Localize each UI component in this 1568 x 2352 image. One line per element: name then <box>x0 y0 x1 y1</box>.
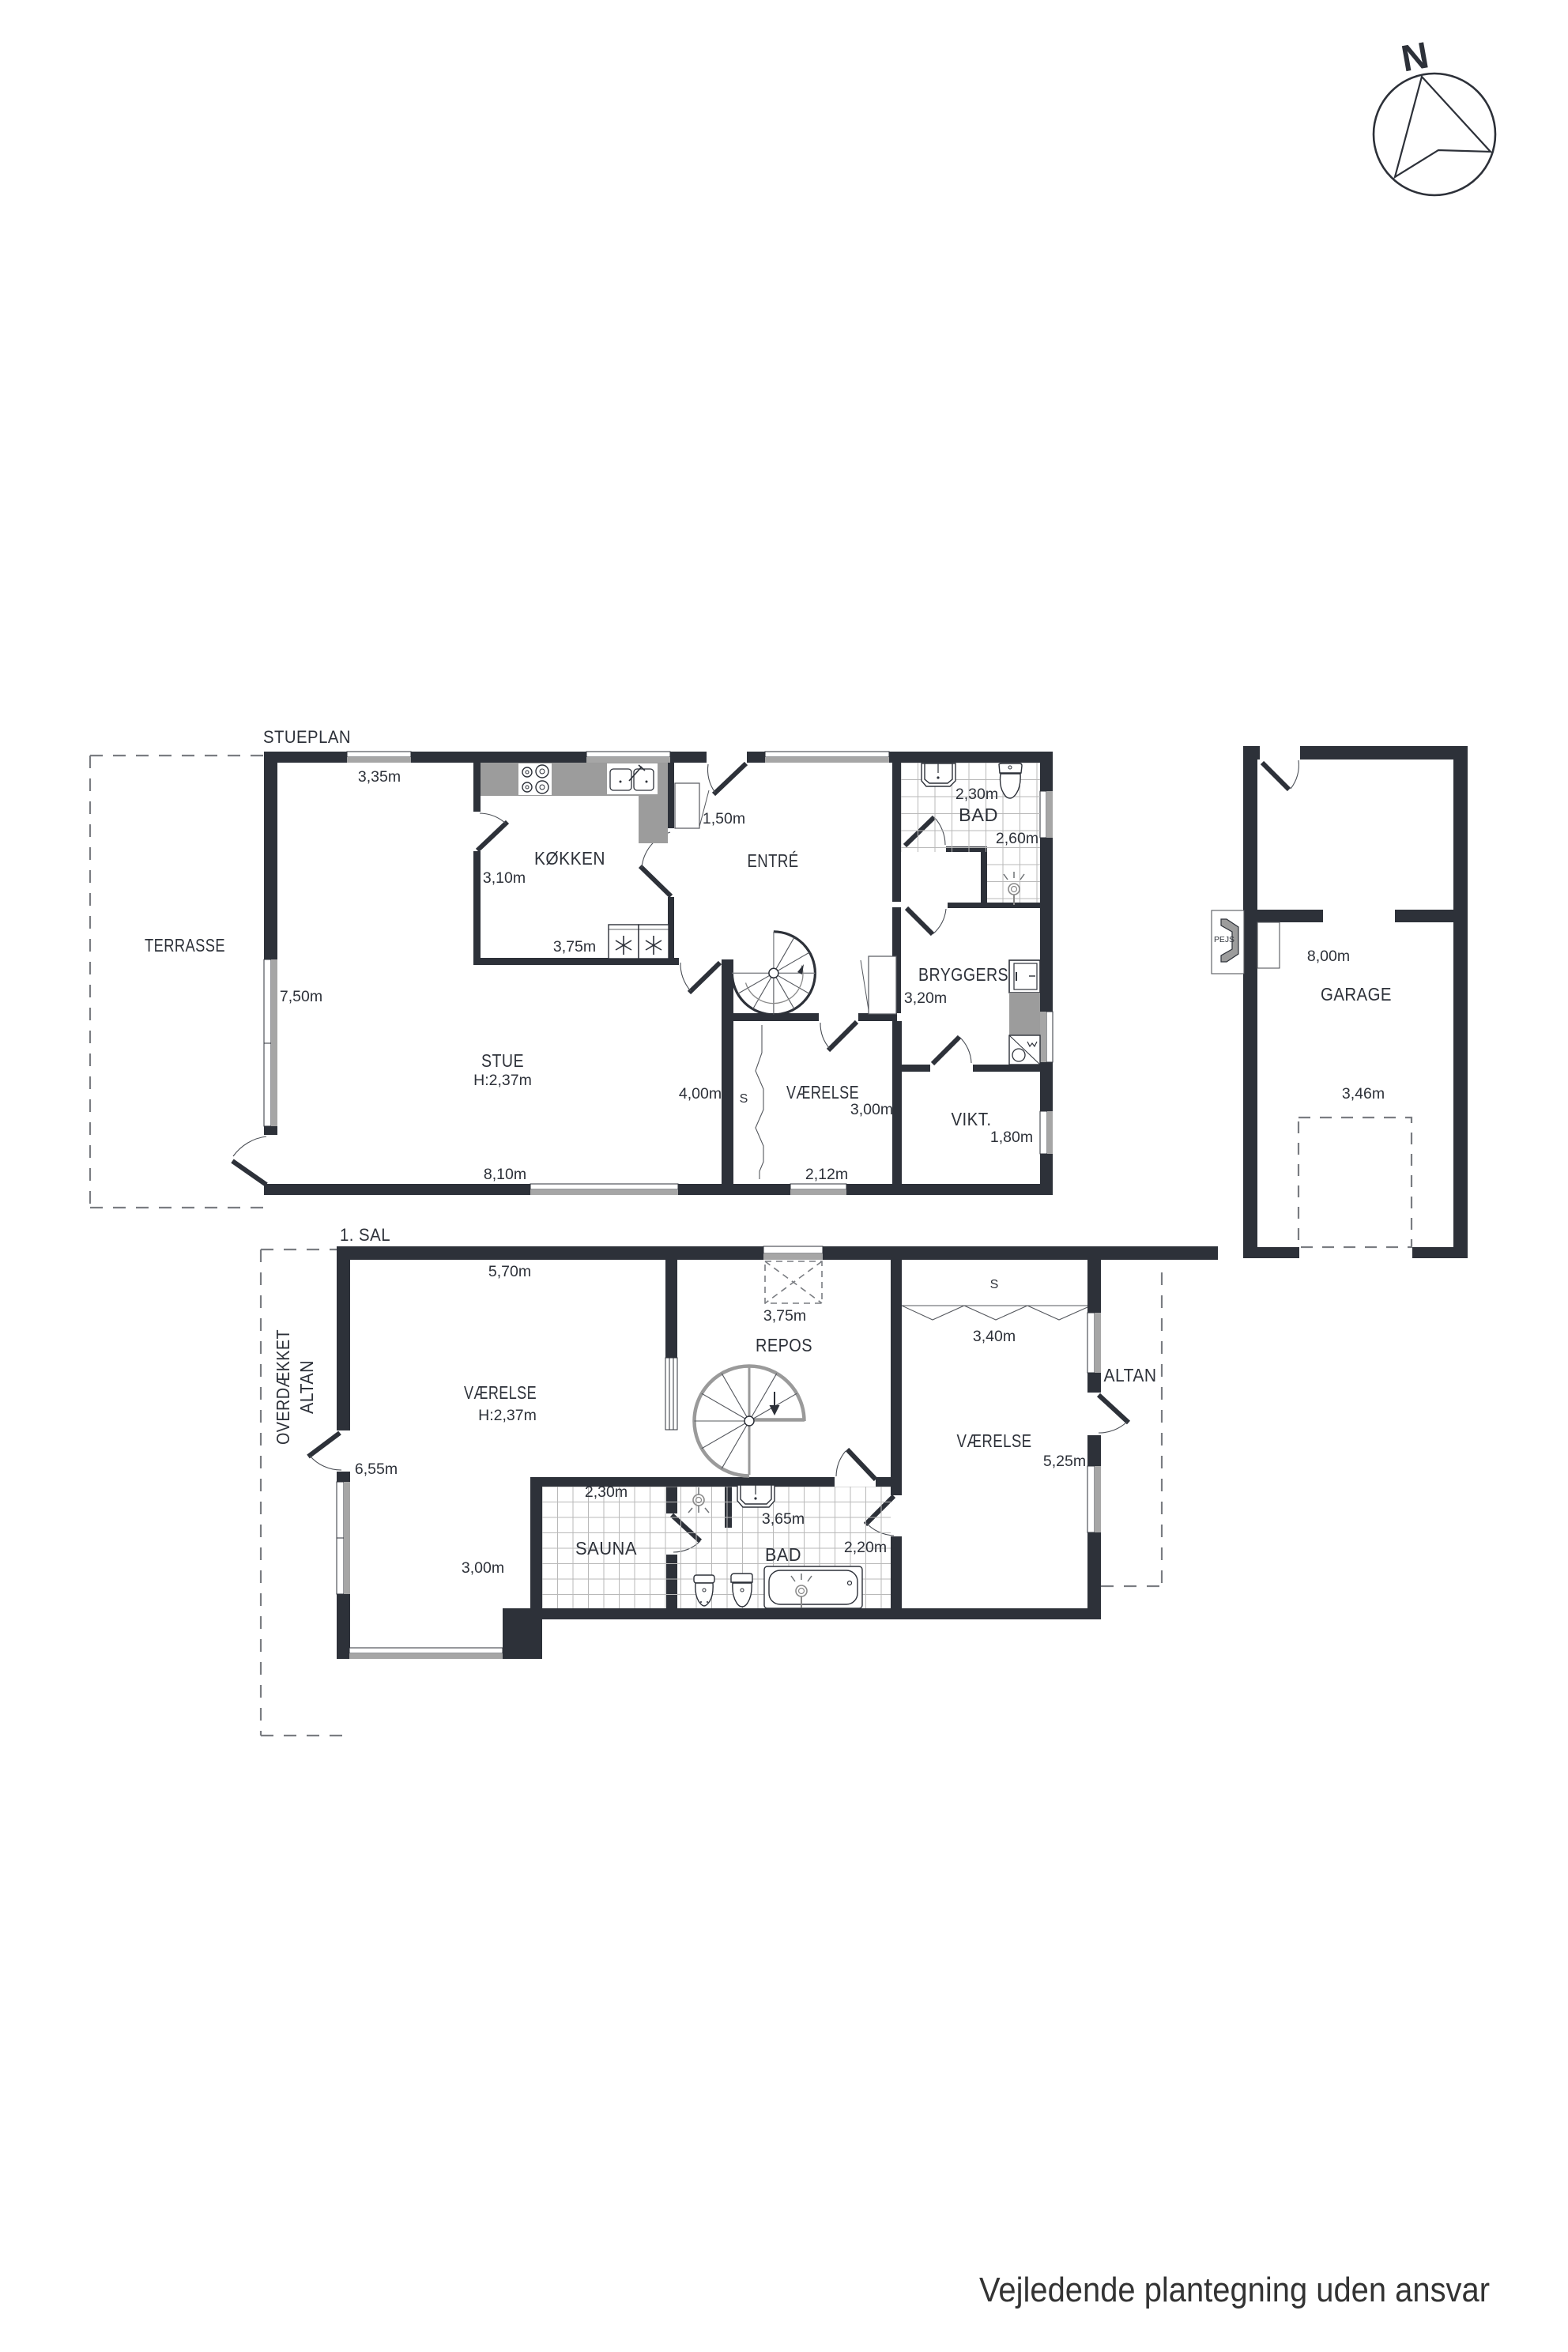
svg-text:BRYGGERS: BRYGGERS <box>918 964 1008 985</box>
svg-text:6,55m: 6,55m <box>355 1461 398 1478</box>
svg-text:BAD: BAD <box>765 1544 801 1565</box>
svg-text:3,40m: 3,40m <box>973 1328 1016 1345</box>
svg-text:OVERDÆKKET: OVERDÆKKET <box>273 1329 293 1445</box>
svg-text:3,65m: 3,65m <box>762 1510 805 1528</box>
svg-text:3,00m: 3,00m <box>462 1559 504 1577</box>
svg-text:S: S <box>990 1278 999 1291</box>
svg-text:4,00m: 4,00m <box>679 1085 722 1102</box>
svg-text:PEJS: PEJS <box>1214 936 1234 944</box>
svg-text:2,60m: 2,60m <box>996 830 1038 847</box>
svg-text:STUEPLAN: STUEPLAN <box>263 727 351 747</box>
svg-text:VIKT.: VIKT. <box>952 1109 992 1129</box>
svg-text:Vejledende plantegning uden an: Vejledende plantegning uden ansvar <box>979 2271 1490 2309</box>
svg-text:3,20m: 3,20m <box>904 989 947 1007</box>
svg-text:5,25m: 5,25m <box>1043 1453 1086 1470</box>
svg-text:GARAGE: GARAGE <box>1321 984 1392 1004</box>
svg-text:1,50m: 1,50m <box>703 810 745 827</box>
svg-text:VÆRELSE: VÆRELSE <box>957 1430 1032 1451</box>
svg-text:2,30m: 2,30m <box>585 1483 628 1501</box>
svg-text:1,80m: 1,80m <box>990 1129 1033 1146</box>
svg-text:2,12m: 2,12m <box>805 1166 848 1183</box>
svg-text:8,00m: 8,00m <box>1307 948 1350 965</box>
svg-text:5,70m: 5,70m <box>488 1263 531 1280</box>
svg-text:3,75m: 3,75m <box>553 938 596 955</box>
svg-text:ENTRÉ: ENTRÉ <box>748 850 799 871</box>
svg-text:S: S <box>740 1092 748 1106</box>
svg-text:SAUNA: SAUNA <box>575 1538 637 1559</box>
svg-text:3,10m: 3,10m <box>483 869 526 887</box>
svg-text:2,20m: 2,20m <box>844 1539 887 1556</box>
svg-text:3,75m: 3,75m <box>763 1307 806 1325</box>
svg-text:3,35m: 3,35m <box>358 768 401 786</box>
svg-text:BAD: BAD <box>959 805 998 825</box>
svg-text:KØKKEN: KØKKEN <box>534 848 605 869</box>
svg-text:7,50m: 7,50m <box>280 988 322 1005</box>
svg-text:3,46m: 3,46m <box>1342 1085 1385 1102</box>
svg-text:ALTAN: ALTAN <box>1104 1365 1157 1385</box>
svg-text:REPOS: REPOS <box>756 1335 812 1355</box>
svg-text:VÆRELSE: VÆRELSE <box>786 1082 859 1102</box>
svg-text:3,00m: 3,00m <box>850 1101 893 1118</box>
svg-text:STUE: STUE <box>481 1050 524 1071</box>
svg-text:8,10m: 8,10m <box>484 1166 526 1183</box>
svg-text:VÆRELSE: VÆRELSE <box>464 1382 537 1403</box>
svg-text:H:2,37m: H:2,37m <box>473 1072 532 1089</box>
svg-text:2,30m: 2,30m <box>955 786 998 803</box>
svg-text:1. SAL: 1. SAL <box>340 1225 390 1245</box>
svg-text:ALTAN: ALTAN <box>296 1360 317 1414</box>
svg-text:H:2,37m: H:2,37m <box>478 1407 537 1424</box>
svg-text:TERRASSE: TERRASSE <box>145 935 225 955</box>
